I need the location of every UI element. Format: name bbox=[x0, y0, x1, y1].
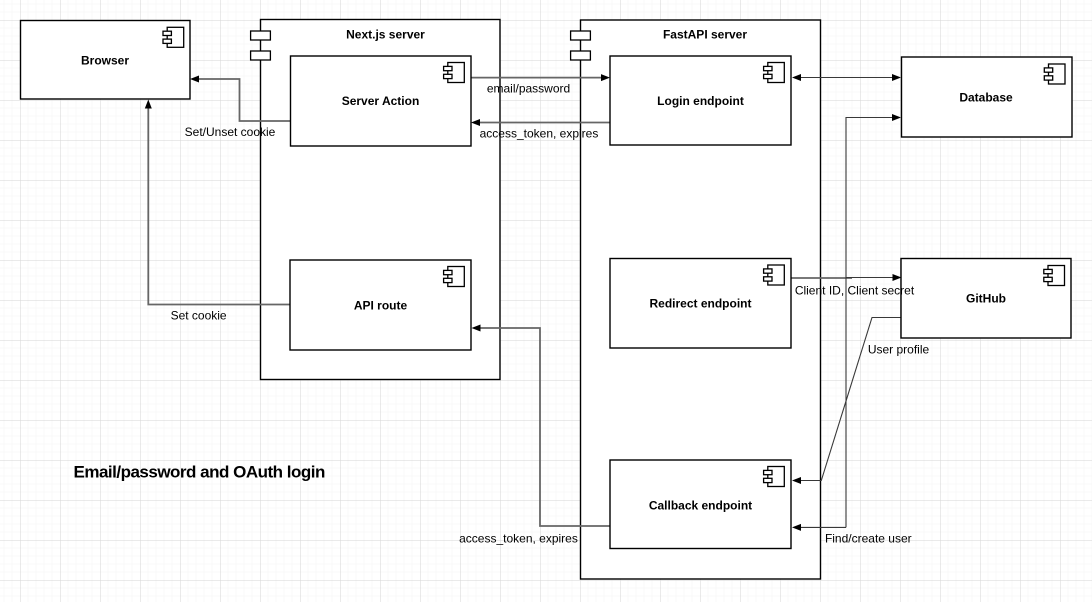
svg-text:FastAPI server: FastAPI server bbox=[663, 28, 747, 42]
svg-text:access_token, expires: access_token, expires bbox=[480, 126, 599, 140]
svg-text:Find/create user: Find/create user bbox=[825, 531, 912, 545]
svg-text:Callback endpoint: Callback endpoint bbox=[649, 498, 752, 512]
svg-text:User profile: User profile bbox=[868, 342, 930, 356]
svg-text:Email/password and OAuth login: Email/password and OAuth login bbox=[74, 463, 325, 482]
svg-text:Browser: Browser bbox=[81, 53, 129, 67]
svg-text:access_token, expires: access_token, expires bbox=[459, 531, 578, 545]
svg-text:Set cookie: Set cookie bbox=[171, 309, 227, 323]
svg-text:Next.js server: Next.js server bbox=[346, 28, 425, 42]
svg-text:Login endpoint: Login endpoint bbox=[657, 94, 744, 108]
svg-text:GitHub: GitHub bbox=[966, 292, 1006, 306]
svg-text:API route: API route bbox=[354, 299, 408, 313]
svg-text:Set/Unset cookie: Set/Unset cookie bbox=[185, 125, 276, 139]
svg-text:Server Action: Server Action bbox=[342, 94, 420, 108]
svg-text:Client ID, Client secret: Client ID, Client secret bbox=[795, 284, 915, 298]
svg-text:email/password: email/password bbox=[487, 81, 570, 95]
svg-text:Database: Database bbox=[959, 91, 1013, 105]
svg-text:Redirect endpoint: Redirect endpoint bbox=[649, 297, 751, 311]
